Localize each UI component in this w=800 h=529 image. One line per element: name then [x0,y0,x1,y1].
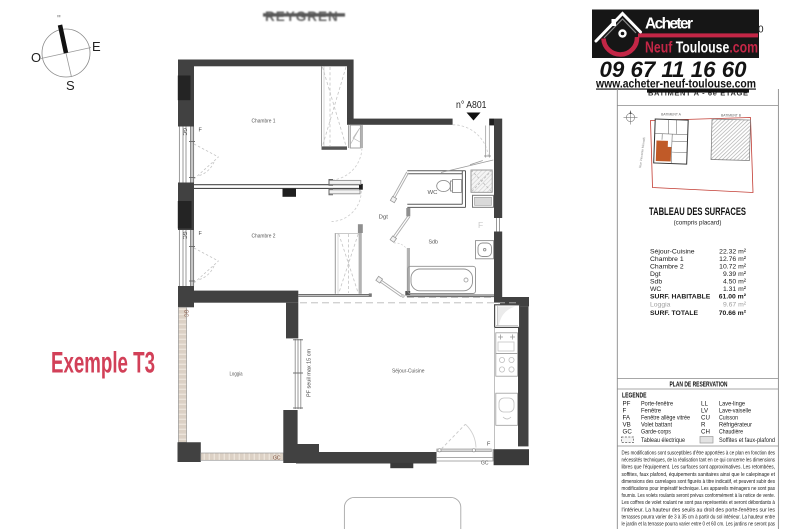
svg-text:VB: VB [623,422,631,429]
svg-text:SURF. TOTALE: SURF. TOTALE [650,310,699,317]
svg-text:nécessités techniques, de la r: nécessités techniques, de la réalisation… [622,458,776,464]
svg-text:CU: CU [701,415,710,422]
svg-text:GC: GC [273,456,281,462]
svg-text:Chambre 2: Chambre 2 [650,264,684,271]
svg-text:TABLEAU DES SURFACES: TABLEAU DES SURFACES [649,206,746,218]
svg-text:terrasses pourra varier de 3 à: terrasses pourra varier de 3 à 35 cm à p… [622,514,776,520]
svg-text:GC: GC [183,310,189,318]
svg-text:E: E [92,39,101,54]
svg-text:CH: CH [701,429,710,436]
svg-text:Fenêtre: Fenêtre [641,408,662,415]
svg-text:LV: LV [701,408,709,415]
svg-text:Lave-vaiselle: Lave-vaiselle [719,408,751,415]
svg-text:Soffites et faux-plafond: Soffites et faux-plafond [719,437,775,444]
svg-text:Porte-fenêtre: Porte-fenêtre [641,401,673,408]
svg-text:Séjour-Cuisine: Séjour-Cuisine [650,249,695,256]
svg-text:GC: GC [623,429,633,436]
svg-text:soffites, faux plafond, équipe: soffites, faux plafond, équipements sani… [622,472,776,478]
svg-text:WC: WC [428,190,438,196]
svg-text:Sdb: Sdb [650,279,662,286]
svg-text:GC: GC [181,128,187,136]
svg-text:PF: PF [623,401,631,408]
svg-text:PLAN DE RESERVATION: PLAN DE RESERVATION [670,381,728,388]
svg-text:dimensions des carrelages sont: dimensions des carrelages sont figurés à… [622,479,776,485]
svg-text:LL: LL [701,401,708,408]
svg-text:FA: FA [623,415,631,422]
svg-text:O: O [31,50,41,65]
svg-text:(compris placard): (compris placard) [674,220,722,227]
svg-text:Neuf Toulouse.com: Neuf Toulouse.com [645,40,758,57]
svg-text:SURF. HABITABLE: SURF. HABITABLE [650,294,711,301]
svg-text:Dgt: Dgt [650,271,661,278]
svg-text:1.31 m²: 1.31 m² [723,286,747,293]
svg-text:Chambre 2: Chambre 2 [252,234,276,240]
svg-text:fournis. Les volets roulants s: fournis. Les volets roulants seront prév… [622,493,776,499]
svg-text:R: R [701,422,706,429]
svg-text:BATIMENT B: BATIMENT B [721,114,742,118]
svg-text:9.39 m²: 9.39 m² [723,271,747,278]
svg-text:PF seuil max 15 cm: PF seuil max 15 cm [307,349,313,397]
svg-text:le jardin et la terrasse pourr: le jardin et la terrasse pourra varier e… [622,522,776,528]
svg-text:Sdb: Sdb [429,240,439,246]
svg-text:Volet battant: Volet battant [641,422,672,429]
svg-text:F: F [478,220,483,230]
svg-text:Chaudière: Chaudière [719,429,743,436]
svg-text:Loggia: Loggia [230,372,243,378]
svg-text:Chambre 1: Chambre 1 [650,256,684,263]
svg-text:'': '' [57,14,61,25]
svg-text:Tableau électrique: Tableau électrique [641,437,685,444]
svg-text:modifications pour impératif t: modifications pour impératif technique. … [622,486,776,492]
svg-text:22.32 m²: 22.32 m² [719,249,747,256]
svg-text:9.67 m²: 9.67 m² [723,302,747,309]
svg-text:libres que l'équipement. Les s: libres que l'équipement. Les surfaces so… [622,465,776,471]
svg-text:Cuisson: Cuisson [719,415,738,422]
svg-text:70.66 m²: 70.66 m² [719,310,747,317]
svg-text:WC: WC [650,286,661,293]
svg-text:Réfrigérateur: Réfrigérateur [719,422,752,429]
svg-text:61.00 m²: 61.00 m² [719,294,747,301]
svg-text:S: S [66,78,75,93]
svg-text:BATIMENT A: BATIMENT A [661,113,682,117]
svg-text:Des modifications sont suscept: Des modifications sont susceptibles d'êt… [622,451,776,457]
svg-text:0: 0 [758,25,764,36]
svg-text:Fenêtre allège vitrée: Fenêtre allège vitrée [641,415,690,422]
svg-text:n° A801: n° A801 [456,100,487,111]
svg-text:Les coffres de volet roulant n: Les coffres de volet roulant ne sont pas… [622,500,776,506]
svg-text:4.50 m²: 4.50 m² [723,279,747,286]
svg-text:Lave-linge: Lave-linge [719,401,745,408]
svg-text:Exemple T3: Exemple T3 [51,347,155,380]
svg-text:Garde-corps: Garde-corps [641,429,671,436]
svg-text:Dgt: Dgt [379,215,389,221]
svg-text:LEGENDE: LEGENDE [622,393,647,400]
svg-text:10.72 m²: 10.72 m² [719,264,747,271]
svg-text:F: F [623,408,627,415]
svg-text:Acheter: Acheter [645,15,693,32]
svg-text:GC: GC [181,232,187,240]
svg-text:GC: GC [481,461,489,467]
svg-text:Séjour-Cuisine: Séjour-Cuisine [392,369,425,375]
svg-text:l'intérieur. La hauteur des se: l'intérieur. La hauteur des seuils au dr… [622,507,776,513]
svg-text:Chambre 1: Chambre 1 [252,119,276,125]
svg-text:12.76 m²: 12.76 m² [719,256,747,263]
svg-text:Loggia: Loggia [650,302,671,309]
